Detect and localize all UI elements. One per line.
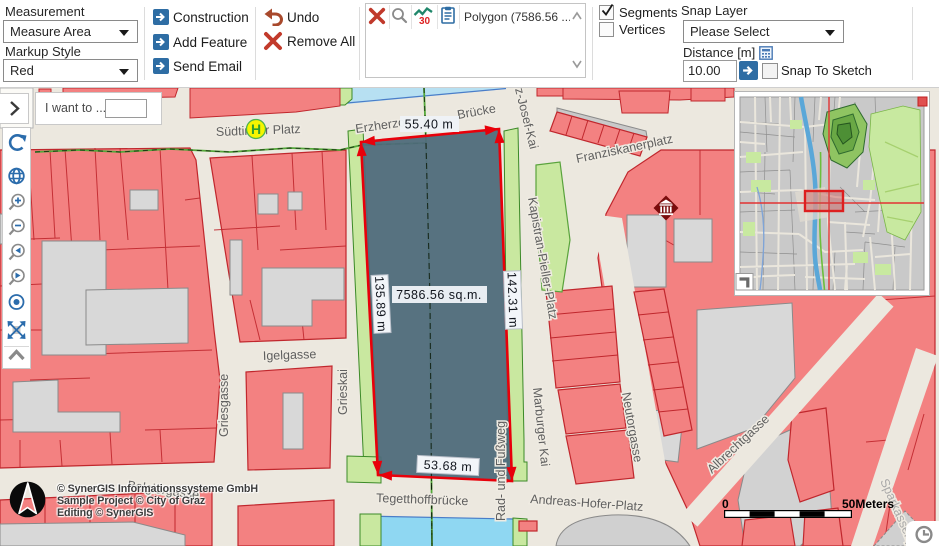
svg-text:135.89 m: 135.89 m: [372, 276, 389, 333]
svg-text:H: H: [251, 121, 261, 137]
svg-text:142.31 m: 142.31 m: [505, 272, 521, 329]
svg-text:Igelgasse: Igelgasse: [263, 347, 317, 363]
svg-text:Grieskai: Grieskai: [336, 369, 350, 415]
svg-text:7586.56 sq.m.: 7586.56 sq.m.: [396, 288, 482, 302]
svg-text:55.40 m: 55.40 m: [405, 118, 454, 132]
svg-text:Griesgasse: Griesgasse: [217, 374, 231, 437]
svg-text:30: 30: [419, 16, 431, 26]
svg-text:53.68 m: 53.68 m: [423, 458, 472, 475]
svg-text:Rad- und Fußweg: Rad- und Fußweg: [494, 421, 508, 521]
